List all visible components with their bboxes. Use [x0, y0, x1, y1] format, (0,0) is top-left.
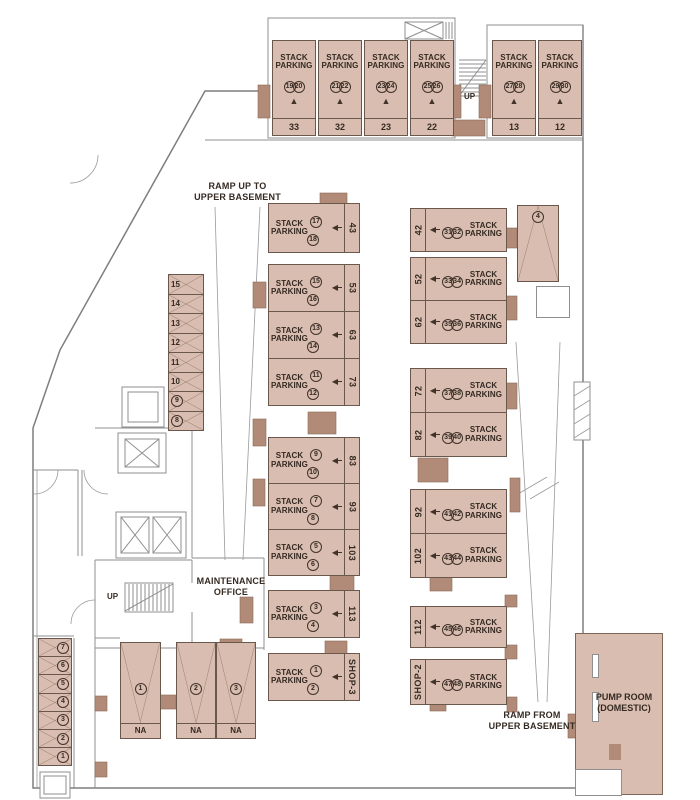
- stack-parking-stall: STACKPARKING 56 ◀ 103: [268, 529, 360, 576]
- stack-parking-stall: STACKPARKING 1112 ◀ 73: [268, 358, 360, 406]
- na-parking-stall: 2 NA: [176, 642, 216, 739]
- stall-title: STACKPARKING: [271, 327, 308, 344]
- mid-stack-group-c: STACKPARKING 910 ◀ 83 STACKPARKING 78 ◀ …: [268, 437, 360, 576]
- mid-stack-group-e: STACKPARKING 12 ◀ SHOP-3: [268, 653, 360, 701]
- na-label: NA: [217, 723, 255, 738]
- bay-number: 62: [411, 301, 426, 343]
- stack-parking-stall: SHOP-2 ◀ 4748 STACKPARKING: [410, 659, 507, 705]
- stall-number: 12: [171, 338, 180, 347]
- bay-number: 12: [539, 119, 581, 135]
- stall-pair-numbers: 34: [310, 596, 330, 632]
- stall-title: STACKPARKING: [271, 544, 308, 561]
- stall-number: 3: [230, 683, 242, 695]
- stall-title: STACKPARKING: [465, 619, 502, 636]
- bay-number: 83: [344, 438, 359, 483]
- column-block: [609, 744, 621, 760]
- mid-stack-group-a: STACKPARKING 1718 ◀ 43: [268, 203, 360, 253]
- drive-direction-arrow-icon: ▲: [382, 97, 391, 106]
- drive-direction-arrow-icon: ◀: [430, 275, 440, 283]
- drive-direction-arrow-icon: ◀: [332, 457, 342, 465]
- stall-pair-numbers: 1920: [284, 75, 305, 93]
- wall-niche: [592, 654, 599, 678]
- stack-parking-stall: STACKPARKING 2324 ▲ 23: [364, 40, 408, 136]
- drive-direction-arrow-icon: ▲: [556, 97, 565, 106]
- right-stack-group-e: 112 ◀ 4546 STACKPARKING: [410, 606, 507, 648]
- two-wheeler-stall: 14: [168, 294, 204, 315]
- stall-pair-numbers: 910: [310, 443, 330, 479]
- stall-pair-numbers: 56: [310, 535, 330, 571]
- bay-number: 93: [344, 484, 359, 529]
- stall-pair-numbers: 78: [310, 489, 330, 525]
- stall-title: STACKPARKING: [465, 547, 502, 564]
- stall-title: STACKPARKING: [271, 606, 308, 623]
- na-stall-pair: 2 NA 3 NA: [176, 642, 256, 739]
- stall-number: 1: [57, 751, 69, 763]
- drive-direction-arrow-icon: ▲: [290, 97, 299, 106]
- stall-pair-numbers: 4546: [442, 618, 463, 636]
- basement-parking-floor-plan: STACKPARKING 1920 ▲ 33 STACKPARKING 2122…: [0, 0, 700, 800]
- top-left-stack-parking-row: STACKPARKING 1920 ▲ 33 STACKPARKING 2122…: [272, 40, 454, 136]
- stall-title: STACKPARKING: [271, 280, 308, 297]
- stall-pair-numbers: 4142: [442, 503, 463, 521]
- na-label: NA: [177, 723, 215, 738]
- drive-direction-arrow-icon: ◀: [430, 508, 440, 516]
- stack-parking-stall: 102 ◀ 4344 STACKPARKING: [410, 533, 507, 578]
- stall-title: STACKPARKING: [322, 54, 359, 71]
- stall-title: STACKPARKING: [271, 498, 308, 515]
- drive-direction-arrow-icon: ◀: [430, 552, 440, 560]
- mid-stack-group-b: STACKPARKING 1516 ◀ 53 STACKPARKING 1314…: [268, 264, 360, 406]
- stall-number: 1: [135, 683, 147, 695]
- bay-number: 42: [411, 209, 426, 251]
- stall-title: STACKPARKING: [465, 503, 502, 520]
- stack-parking-stall: STACKPARKING 2728 ▲ 13: [492, 40, 536, 136]
- stall-pair-numbers: 4344: [442, 547, 463, 565]
- stack-parking-stall: STACKPARKING 2122 ▲ 32: [318, 40, 362, 136]
- stall-number: 4: [532, 211, 544, 223]
- stack-parking-stall: STACKPARKING 1920 ▲ 33: [272, 40, 316, 136]
- stall-number: 10: [171, 377, 180, 386]
- stack-parking-stall: 72 ◀ 3738 STACKPARKING: [410, 368, 507, 413]
- stack-parking-stall: 62 ◀ 3536 STACKPARKING: [410, 300, 507, 344]
- up-label-mid-stair: UP: [107, 592, 118, 601]
- ramp-stall-4: 4: [517, 205, 559, 282]
- drive-direction-arrow-icon: ◀: [332, 503, 342, 511]
- bay-number: 92: [411, 490, 426, 533]
- stack-parking-stall: STACKPARKING 1516 ◀ 53: [268, 264, 360, 312]
- top-right-stack-parking-row: STACKPARKING 2728 ▲ 13 STACKPARKING 2930…: [492, 40, 582, 136]
- bottom-two-wheeler-column: 7 6 5 4 3 2 1: [38, 638, 72, 766]
- stall-pair-numbers: 2324: [376, 75, 397, 93]
- stall-title: STACKPARKING: [465, 426, 502, 443]
- stall-number: 2: [57, 733, 69, 745]
- bay-number: 53: [344, 265, 359, 311]
- drive-direction-arrow-icon: ▲: [510, 97, 519, 106]
- stall-title: STACKPARKING: [276, 54, 313, 71]
- stack-parking-stall: 52 ◀ 3334 STACKPARKING: [410, 257, 507, 301]
- stall-pair-numbers: 2526: [422, 75, 443, 93]
- bay-number: 23: [365, 119, 407, 135]
- two-wheeler-stall: 1: [38, 747, 72, 766]
- bay-number: 102: [411, 534, 426, 577]
- stall-title: STACKPARKING: [542, 54, 579, 71]
- stack-parking-stall: STACKPARKING 1718 ◀ 43: [268, 203, 360, 253]
- stall-number: 11: [171, 358, 179, 367]
- right-stack-group-f: SHOP-2 ◀ 4748 STACKPARKING: [410, 659, 507, 705]
- bay-number: 13: [493, 119, 535, 135]
- stack-parking-stall: 82 ◀ 3940 STACKPARKING: [410, 412, 507, 457]
- stack-parking-stall: 92 ◀ 4142 STACKPARKING: [410, 489, 507, 534]
- drive-direction-arrow-icon: ◀: [430, 431, 440, 439]
- drive-direction-arrow-icon: ◀: [332, 224, 342, 232]
- stall-title: STACKPARKING: [368, 54, 405, 71]
- stall-pair-numbers: 3132: [442, 221, 463, 239]
- drive-direction-arrow-icon: ▲: [336, 97, 345, 106]
- stall-pair-numbers: 12: [310, 659, 330, 695]
- stall-pair-numbers: 3738: [442, 382, 463, 400]
- stall-pair-numbers: 1718: [310, 210, 330, 246]
- two-wheeler-stall: 8: [168, 411, 204, 432]
- two-wheeler-stall: 9: [168, 391, 204, 412]
- stall-title: STACKPARKING: [465, 222, 502, 239]
- stall-pair-numbers: 3334: [442, 270, 463, 288]
- stall-number: 6: [57, 660, 69, 672]
- stack-parking-stall: STACKPARKING 78 ◀ 93: [268, 483, 360, 530]
- stall-pair-numbers: 1516: [310, 270, 330, 306]
- pump-room-duct-box: [575, 769, 622, 796]
- bay-number: SHOP-2: [411, 660, 426, 704]
- right-stack-group-c: 72 ◀ 3738 STACKPARKING 82 ◀ 3940 STACKPA…: [410, 368, 507, 457]
- stall-title: STACKPARKING: [271, 452, 308, 469]
- two-wheeler-stall: 7: [38, 638, 72, 657]
- stall-pair-numbers: 1112: [310, 364, 330, 400]
- two-wheeler-stall: 13: [168, 313, 204, 334]
- stall-title: STACKPARKING: [496, 54, 533, 71]
- drive-direction-arrow-icon: ◀: [430, 226, 440, 234]
- stall-title: STACKPARKING: [465, 314, 502, 331]
- bay-number: 33: [273, 119, 315, 135]
- drive-direction-arrow-icon: ◀: [332, 284, 342, 292]
- drive-direction-arrow-icon: ◀: [332, 331, 342, 339]
- stack-parking-stall: STACKPARKING 2526 ▲ 22: [410, 40, 454, 136]
- stall-title: STACKPARKING: [271, 374, 308, 391]
- na-parking-stall: 1 NA: [120, 642, 161, 739]
- stall-number: 13: [171, 319, 180, 328]
- bay-number: SHOP-3: [344, 654, 359, 700]
- two-wheeler-stall: 10: [168, 372, 204, 393]
- stall-title: STACKPARKING: [465, 382, 502, 399]
- stack-parking-stall: 42 ◀ 3132 STACKPARKING: [410, 208, 507, 252]
- right-stack-group-d: 92 ◀ 4142 STACKPARKING 102 ◀ 4344 STACKP…: [410, 489, 507, 578]
- stack-parking-stall: STACKPARKING 34 ◀ 113: [268, 590, 360, 638]
- stall-title: STACKPARKING: [414, 54, 451, 71]
- stack-parking-stall: STACKPARKING 12 ◀ SHOP-3: [268, 653, 360, 701]
- bay-number: 82: [411, 413, 426, 456]
- na-parking-stall: 3 NA: [216, 642, 256, 739]
- stall-title: STACKPARKING: [465, 674, 502, 691]
- stall-number: 2: [190, 683, 202, 695]
- stall-number: 14: [171, 299, 180, 308]
- left-two-wheeler-column: 15 14 13 12 11 10 9: [168, 274, 204, 431]
- stall-pair-numbers: 2728: [504, 75, 525, 93]
- bay-number: 52: [411, 258, 426, 300]
- stall-number: 8: [171, 415, 183, 427]
- drive-direction-arrow-icon: ◀: [430, 678, 440, 686]
- stack-parking-stall: STACKPARKING 1314 ◀ 63: [268, 311, 360, 359]
- pump-room-label: PUMP ROOM(DOMESTIC): [586, 692, 662, 714]
- two-wheeler-stall: 11: [168, 352, 204, 373]
- stack-parking-stall: STACKPARKING 2930 ▲ 12: [538, 40, 582, 136]
- service-shaft-box: [536, 286, 570, 318]
- stall-title: STACKPARKING: [271, 669, 308, 686]
- stall-number: 5: [57, 678, 69, 690]
- drive-direction-arrow-icon: ◀: [430, 623, 440, 631]
- stall-pair-numbers: 3536: [442, 313, 463, 331]
- stall-pair-numbers: 1314: [310, 317, 330, 353]
- drive-direction-arrow-icon: ◀: [430, 318, 440, 326]
- bay-number: 63: [344, 312, 359, 358]
- stall-number: 7: [57, 642, 69, 654]
- na-stall-single: 1 NA: [120, 642, 161, 739]
- bay-number: 103: [344, 530, 359, 575]
- ramp-up-label: RAMP UP TOUPPER BASEMENT: [160, 181, 315, 203]
- two-wheeler-stall: 12: [168, 333, 204, 354]
- two-wheeler-stall: 15: [168, 274, 204, 295]
- stall-pair-numbers: 3940: [442, 426, 463, 444]
- bay-number: 22: [411, 119, 453, 135]
- right-stack-group-a: 42 ◀ 3132 STACKPARKING: [410, 208, 507, 252]
- stall-title: STACKPARKING: [271, 220, 308, 237]
- stack-parking-stall: STACKPARKING 910 ◀ 83: [268, 437, 360, 484]
- two-wheeler-stall: 4: [38, 693, 72, 712]
- stack-parking-stall: 112 ◀ 4546 STACKPARKING: [410, 606, 507, 648]
- up-label-top-stair: UP: [464, 92, 475, 101]
- bay-number: 43: [344, 204, 359, 252]
- bay-number: 32: [319, 119, 361, 135]
- stall-number: 15: [171, 280, 180, 289]
- stall-pair-numbers: 2122: [330, 75, 351, 93]
- bay-number: 72: [411, 369, 426, 412]
- two-wheeler-stall: 6: [38, 656, 72, 675]
- drive-direction-arrow-icon: ◀: [430, 387, 440, 395]
- drive-direction-arrow-icon: ◀: [332, 549, 342, 557]
- drive-direction-arrow-icon: ◀: [332, 673, 342, 681]
- bay-number: 113: [344, 591, 359, 637]
- two-wheeler-stall: 2: [38, 729, 72, 748]
- drive-direction-arrow-icon: ▲: [428, 97, 437, 106]
- drive-direction-arrow-icon: ◀: [332, 378, 342, 386]
- na-label: NA: [121, 723, 160, 738]
- stall-title: STACKPARKING: [465, 271, 502, 288]
- two-wheeler-stall: 3: [38, 711, 72, 730]
- two-wheeler-stall: 5: [38, 674, 72, 693]
- right-stack-group-b: 52 ◀ 3334 STACKPARKING 62 ◀ 3536 STACKPA…: [410, 257, 507, 344]
- bay-number: 73: [344, 359, 359, 405]
- maintenance-office-label: MAINTENANCEOFFICE: [190, 576, 272, 598]
- mid-stack-group-d: STACKPARKING 34 ◀ 113: [268, 590, 360, 638]
- stall-pair-numbers: 2930: [550, 75, 571, 93]
- ramp-from-label: RAMP FROMUPPER BASEMENT: [478, 710, 586, 732]
- drive-direction-arrow-icon: ◀: [332, 610, 342, 618]
- bay-number: 112: [411, 607, 426, 647]
- stall-pair-numbers: 4748: [442, 673, 463, 691]
